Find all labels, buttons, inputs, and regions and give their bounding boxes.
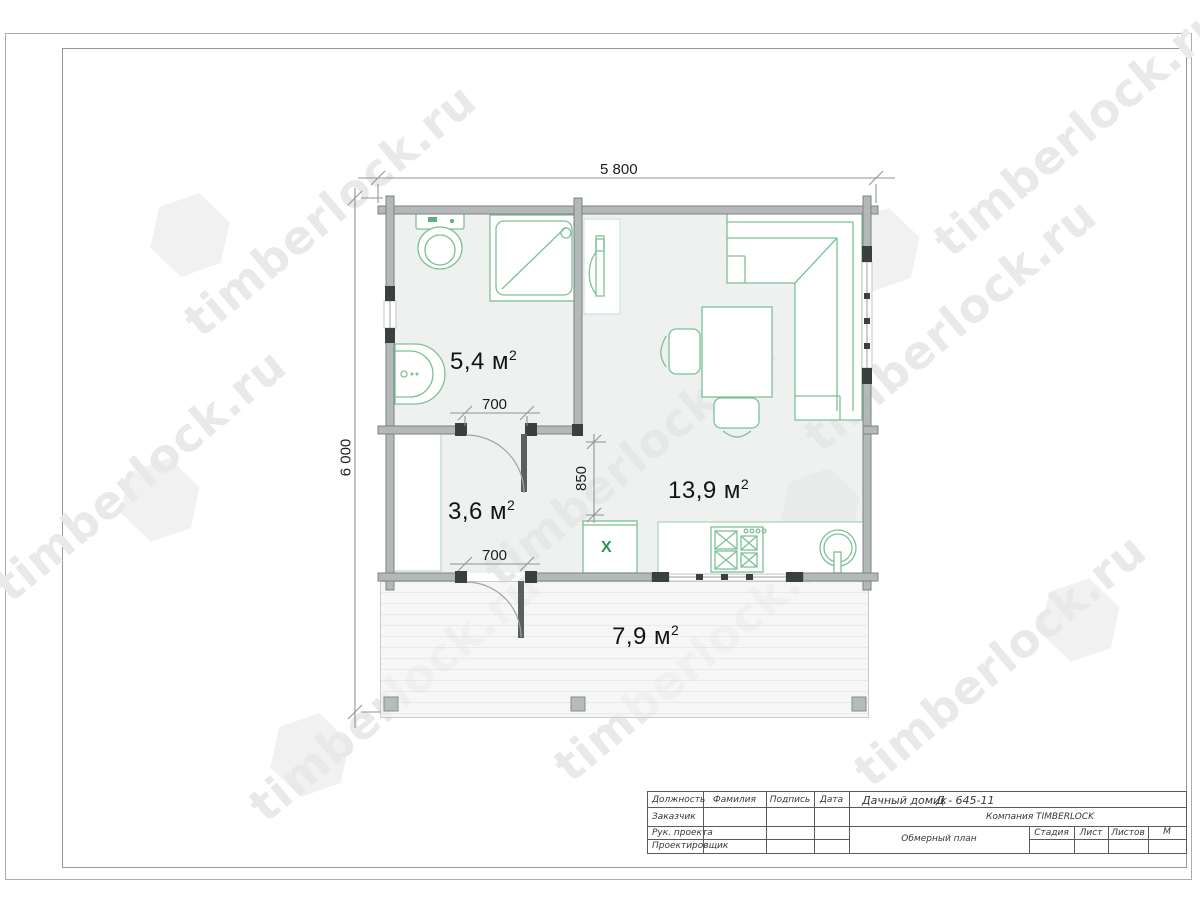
tb-header-date: Дата — [814, 796, 849, 805]
wall-internal-vertical — [574, 198, 582, 434]
door-jamb — [455, 571, 467, 583]
terrace-posts — [384, 697, 866, 711]
room-area-label-terrace: 7,9 м2 — [612, 622, 679, 651]
wall-internal-horizontal — [378, 426, 465, 434]
wall-left — [386, 196, 394, 590]
shower-cabin — [490, 215, 578, 301]
table — [702, 307, 772, 397]
tb-header-signature: Подпись — [766, 796, 814, 805]
title-block: Должность Фамилия Подпись Дата Дачный до… — [647, 791, 1187, 854]
tb-row-project-lead: Рук. проекта — [652, 829, 713, 838]
fridge-symbol: X — [601, 539, 612, 557]
room-area-label-hall: 3,6 м2 — [448, 497, 515, 526]
window-bottom-wall — [652, 572, 803, 582]
dimension-width-label: 5 800 — [600, 161, 638, 178]
wall-bottom — [803, 573, 878, 581]
tb-row-designer: Проектировщик — [652, 842, 728, 851]
tb-drawing-name: Обмерный план — [849, 835, 1029, 844]
wall-end-block — [572, 424, 583, 436]
window-left-wall — [384, 286, 396, 343]
room-area-label-living-room: 13,9 м2 — [668, 476, 749, 505]
room-area-label-bathroom: 5,4 м2 — [450, 347, 517, 376]
wall-top — [378, 206, 878, 214]
dimension-door-top-label: 700 — [482, 396, 507, 413]
tb-project-code: Д - 645-11 — [936, 795, 995, 806]
terrace-post — [571, 697, 585, 711]
tb-col-sheet: Лист — [1074, 829, 1108, 838]
door-swing-arc — [467, 582, 521, 637]
tb-col-scale: М — [1148, 828, 1186, 837]
wardrobe — [393, 432, 441, 571]
door-jamb — [525, 571, 537, 583]
dimension-height-label: 6 000 — [337, 439, 354, 477]
wall-bottom — [527, 573, 652, 581]
terrace-post — [852, 697, 866, 711]
tb-col-sheets: Листов — [1108, 829, 1148, 838]
wall-heater — [584, 219, 620, 314]
tb-header-surname: Фамилия — [703, 796, 766, 805]
drawing-sheet: { "watermark": { "text": "timberlock.ru"… — [0, 0, 1200, 900]
floor-plan-drawing — [0, 0, 1200, 900]
toilet — [416, 213, 464, 269]
tb-company-label: Компания — [986, 813, 1033, 822]
window-right-wall — [862, 246, 872, 384]
tb-row-customer: Заказчик — [652, 813, 696, 822]
tb-header-position: Должность — [652, 796, 705, 805]
dimension-door-bottom-label: 700 — [482, 547, 507, 564]
door-leaf — [521, 434, 527, 492]
tb-company-name: TIMBERLOCK — [1036, 813, 1094, 822]
tb-col-stage: Стадия — [1029, 829, 1074, 838]
wall-bottom — [378, 573, 465, 581]
tb-project-type: Дачный домик — [862, 795, 947, 806]
terrace-post — [384, 697, 398, 711]
dimension-passage-label: 850 — [573, 466, 590, 491]
log-end-stub — [863, 426, 878, 434]
